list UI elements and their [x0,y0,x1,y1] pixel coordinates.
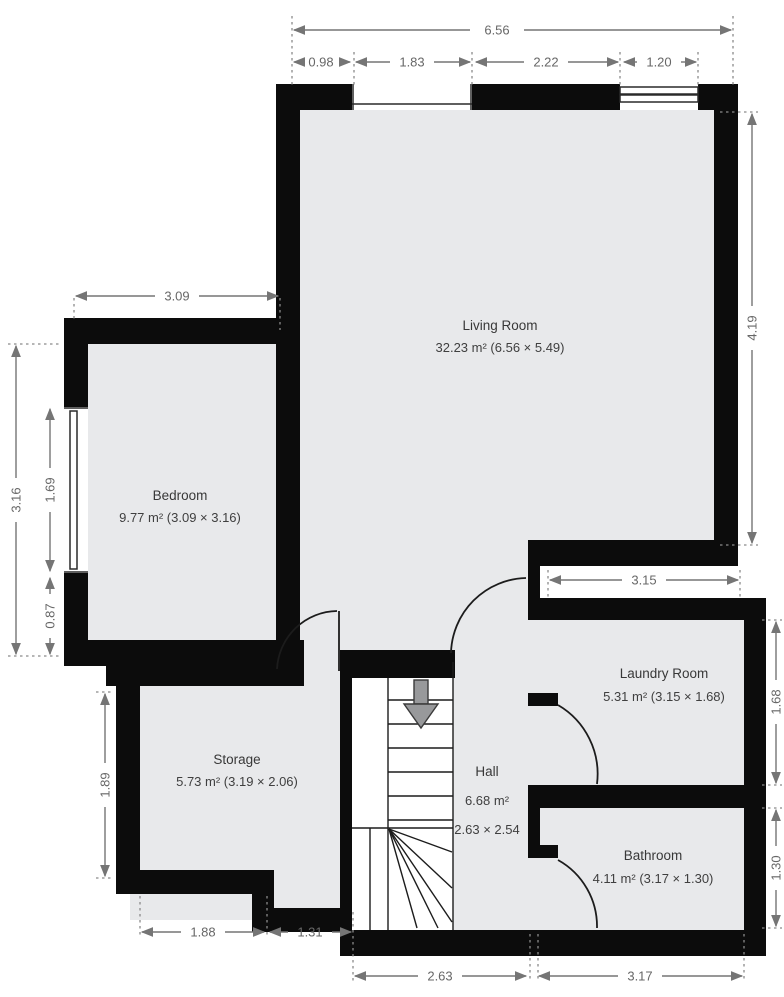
window-pane [70,411,77,569]
wall-stub-laundry-door [528,693,558,706]
dim-label: 6.56 [484,23,509,38]
room-name: Hall [475,764,498,779]
room-area: 6.68 m² [465,793,510,808]
wall-bedroom-north [64,318,300,344]
dim-bathroom-height: 1.30 [769,810,784,926]
room-name: Living Room [462,318,537,333]
bedroom-window [64,407,88,573]
dim-label: 3.15 [631,573,656,588]
dim-label: 1.83 [399,55,424,70]
wall-bedroom-west-upper [64,318,88,407]
room-name: Laundry Room [620,666,709,681]
dim-top-window-left: 1.83 [356,55,470,70]
wall-living-south [536,540,738,566]
dim-label: 0.87 [43,603,58,628]
wall-laundry-east [744,598,766,785]
dim-storage-bottom-width: 1.88 [142,925,264,940]
dim-total-width: 6.56 [294,23,731,38]
wall-laundry-north [536,598,766,620]
dim-laundry-width: 3.15 [550,573,738,588]
dim-top-wall-mid: 2.22 [476,55,618,70]
dim-label: 3.16 [9,487,24,512]
wall-stairwell-north [340,650,455,678]
room-area: 4.11 m² (3.17 × 1.30) [593,871,714,886]
dim-bedroom-window: 1.69 [43,409,58,571]
wall-storage-south [116,870,274,894]
stairwell-floor [352,675,453,930]
window-slat-upper [620,87,698,94]
room-name: Storage [213,752,260,767]
room-area: 32.23 m² (6.56 × 5.49) [436,340,565,355]
dim-laundry-height: 1.68 [769,622,784,783]
window-slat-lower [620,95,698,102]
dim-label: 1.68 [769,689,784,714]
dim-bedroom-below-window: 0.87 [43,578,58,654]
floor-plan-canvas: 6.56 0.98 1.83 2.22 1.20 3.09 [0,0,784,992]
wall-storage-west [116,660,140,894]
dim-bedroom-height: 3.16 [9,346,24,654]
wall-bathroom-east [744,785,766,956]
room-size: 2.63 × 2.54 [454,822,519,837]
dim-label: 4.19 [745,315,760,340]
dim-bathroom-bottom-width: 3.17 [539,969,742,984]
wall-living-west [276,84,300,640]
dim-label: 3.17 [627,969,652,984]
room-name: Bathroom [624,848,683,863]
dim-label: 1.30 [769,855,784,880]
dim-hall-bottom-width: 2.63 [355,969,526,984]
wall-top-mid [472,84,620,110]
dim-label: 2.63 [427,969,452,984]
dim-label: 3.09 [164,289,189,304]
dim-living-right-height: 4.19 [745,114,760,543]
dim-label: 1.31 [297,925,322,940]
wall-stairwell-west [340,650,352,932]
room-area: 9.77 m² (3.09 × 3.16) [119,510,241,525]
dim-label: 2.22 [533,55,558,70]
living-window-right [620,84,698,110]
dim-label: 1.89 [98,772,113,797]
dim-label: 0.98 [308,55,333,70]
wall-right-living [714,84,738,566]
dim-label: 1.20 [646,55,671,70]
room-area: 5.31 m² (3.15 × 1.68) [603,689,725,704]
room-area: 5.73 m² (3.19 × 2.06) [176,774,298,789]
wall-laundry-bathroom-divider [528,785,766,808]
dim-top-wall-left: 0.98 [294,55,350,70]
dim-bedroom-width: 3.09 [76,289,278,304]
dim-storage-height: 1.89 [98,694,113,876]
bathroom-floor [536,800,750,930]
floor-plan-page: 6.56 0.98 1.83 2.22 1.20 3.09 [0,0,784,992]
wall-bottom [340,930,766,956]
dim-label: 1.88 [190,925,215,940]
dim-label: 1.69 [43,477,58,502]
wall-stub-bathroom-door [528,845,558,858]
wall-hall-east-lower [528,808,540,847]
living-window-left [352,84,472,110]
dim-top-window-right: 1.20 [624,55,696,70]
room-name: Bedroom [153,488,208,503]
window-glass-area [352,84,472,110]
